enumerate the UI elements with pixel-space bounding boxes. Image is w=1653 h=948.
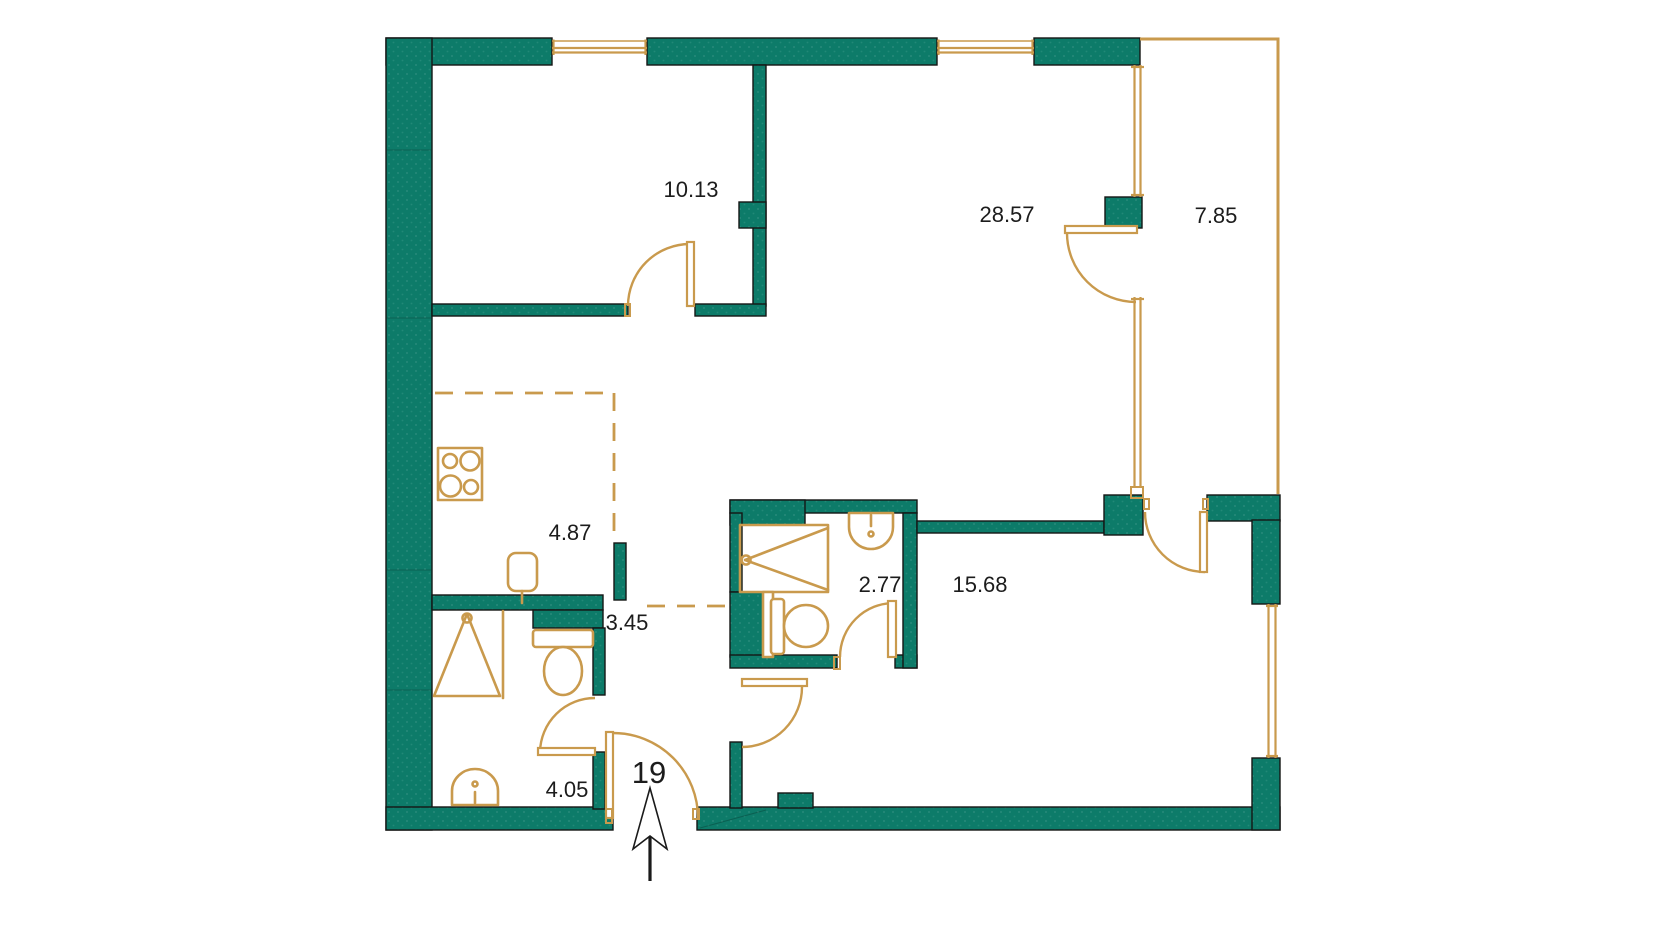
wall-shower-room-west-lower bbox=[730, 592, 763, 657]
wall-balcony-pier bbox=[1105, 197, 1142, 228]
wall-bottom-pilaster bbox=[778, 793, 813, 808]
label-bathroom-area: 4.05 bbox=[546, 777, 589, 802]
label-balcony-area: 7.85 bbox=[1195, 203, 1238, 228]
wall-corridor-south bbox=[917, 521, 1104, 533]
label-bedroom-2-area: 15.68 bbox=[952, 572, 1007, 597]
door-shower-room bbox=[834, 601, 896, 669]
wall-shower-room-south-left bbox=[730, 655, 837, 668]
wall-right-lower bbox=[1252, 758, 1280, 830]
wall-right-upper-h bbox=[1207, 495, 1280, 521]
label-bedroom-area: 10.13 bbox=[663, 177, 718, 202]
window-bedroom-2 bbox=[1266, 604, 1278, 758]
wall-bathroom-east-lower bbox=[593, 752, 605, 809]
wall-bedroom-south-left bbox=[432, 304, 628, 316]
entrance-marker: 19 bbox=[632, 755, 667, 881]
shower-tray-icon bbox=[740, 525, 828, 592]
window-living-room bbox=[937, 40, 1034, 56]
wall-bedroom-pier bbox=[739, 202, 766, 228]
wall-shower-room-east bbox=[903, 513, 917, 668]
entrance-arrow-icon bbox=[633, 788, 667, 881]
washbasin-bathroom-icon bbox=[452, 769, 498, 805]
label-living-room-area: 28.57 bbox=[979, 202, 1034, 227]
wall-right-upper-v bbox=[1252, 520, 1280, 604]
balcony-glazing-upper bbox=[1131, 65, 1144, 197]
door-bedroom bbox=[625, 242, 694, 316]
label-shower-room-area: 2.77 bbox=[859, 572, 902, 597]
wall-bedroom-south-right bbox=[695, 304, 766, 316]
balcony-parapet bbox=[1140, 39, 1278, 494]
toilet-shower-room-icon bbox=[771, 599, 828, 654]
wall-corridor-corner bbox=[533, 610, 603, 628]
walls bbox=[386, 38, 1280, 830]
label-hallway-area: 3.45 bbox=[606, 610, 649, 635]
wall-kitchen-stub bbox=[614, 543, 626, 600]
stove-icon bbox=[438, 448, 482, 500]
toilet-bathroom-icon bbox=[533, 630, 593, 695]
door-bedroom-2 bbox=[1144, 499, 1208, 572]
door-bathroom bbox=[538, 698, 595, 755]
floor-plan-canvas: 10.13 28.57 7.85 4.87 3.45 2.77 15.68 4.… bbox=[0, 0, 1653, 948]
door-balcony bbox=[1065, 226, 1137, 302]
wall-top-right bbox=[1034, 38, 1140, 65]
wall-bottom-left bbox=[386, 807, 613, 830]
room-labels: 10.13 28.57 7.85 4.87 3.45 2.77 15.68 4.… bbox=[546, 177, 1238, 802]
window-bedroom bbox=[552, 40, 647, 56]
entrance-number: 19 bbox=[632, 755, 666, 790]
balcony-glazing-lower bbox=[1131, 297, 1144, 498]
shower-bathroom-icon bbox=[434, 611, 503, 698]
wall-bedroom-divider bbox=[753, 65, 766, 306]
washbasin-shower-room-icon bbox=[849, 513, 893, 549]
wall-hall-stub bbox=[730, 742, 742, 808]
wall-bathroom-east-upper bbox=[593, 628, 605, 695]
wall-door-block bbox=[1104, 495, 1143, 535]
wall-bottom-right bbox=[697, 807, 1280, 830]
label-kitchen-area: 4.87 bbox=[549, 520, 592, 545]
wall-top-mid bbox=[647, 38, 937, 65]
door-hall bbox=[742, 679, 807, 747]
wall-left bbox=[386, 38, 432, 830]
floor-plan: 10.13 28.57 7.85 4.87 3.45 2.77 15.68 4.… bbox=[0, 0, 1653, 948]
wall-kitchen-south bbox=[432, 595, 603, 610]
